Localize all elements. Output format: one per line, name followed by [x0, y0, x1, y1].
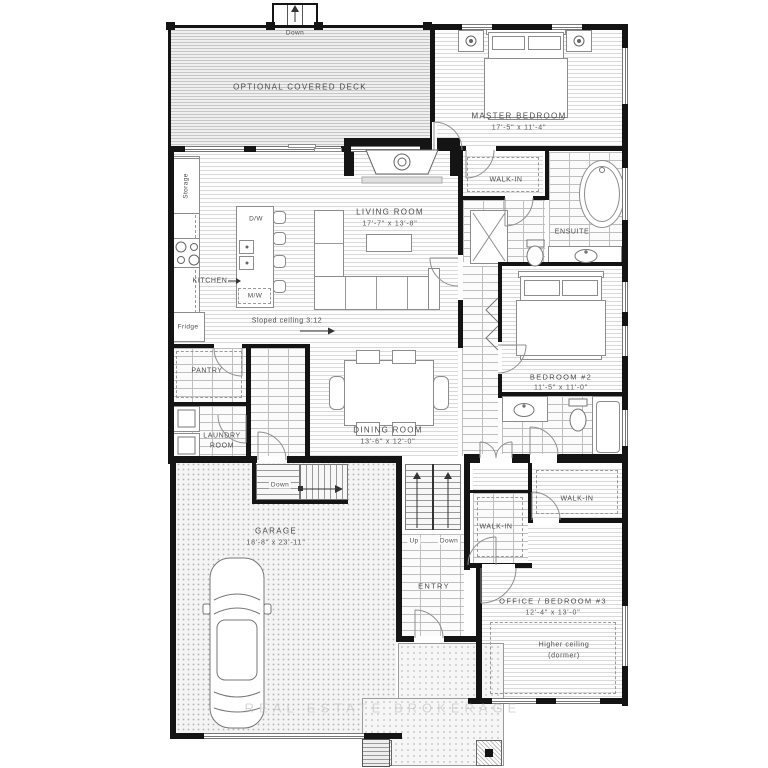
door-french-right	[496, 442, 512, 458]
pantry-label: PANTRY	[191, 368, 222, 375]
door-master	[434, 122, 462, 150]
office-bedroom3-label: OFFICE / BEDROOM #3	[499, 597, 607, 606]
toilet-bath-icon	[569, 399, 587, 431]
stairs-up-label: Up	[407, 538, 420, 545]
dormer-label: (dormer)	[548, 653, 580, 660]
fridge-label: Fridge	[178, 324, 199, 331]
living-room-dims: 17'-7" x 13'-8"	[362, 221, 417, 228]
fireplace-icon	[362, 150, 442, 183]
sloped-ceiling-label: Sloped ceiling 3:12	[252, 318, 323, 325]
dining-room-dims: 13'-6" x 12'-0"	[360, 439, 415, 446]
sink-drain	[246, 262, 249, 265]
dining-room-label: DINING ROOM	[353, 426, 422, 435]
laundry-label-1: LAUNDRY	[203, 433, 241, 440]
washer-dryer-icon	[178, 410, 195, 454]
walkin-office-label: WALK-IN	[560, 496, 593, 503]
tub-faucet	[600, 168, 605, 173]
toilet-ensuite-icon	[527, 240, 544, 266]
shower-x-icon	[473, 213, 505, 261]
living-room-label: LIVING ROOM	[356, 208, 424, 217]
walkin-master-label: WALK-IN	[489, 177, 522, 184]
door-walkin-entry	[468, 537, 496, 565]
sink-drain	[246, 246, 249, 249]
higher-ceiling-label: Higher ceiling	[539, 642, 590, 649]
sink-ensuite-icon	[575, 250, 597, 263]
bedroom2-dims: 11'-5" x 11'-0"	[534, 385, 588, 392]
door-walkin-office	[532, 492, 560, 520]
door-hall-living	[430, 258, 458, 286]
door-bath	[530, 427, 558, 455]
garage-label: GARAGE	[255, 527, 297, 536]
microwave-label: M/W	[248, 293, 263, 300]
door-bedroom2	[498, 345, 526, 373]
master-bedroom-dims: 17'-5" x 11'-4"	[492, 125, 547, 132]
sink-bath-icon	[514, 404, 534, 417]
door-french-left	[480, 442, 496, 458]
kitchen-label: KITCHEN	[193, 278, 228, 285]
lamp-icon	[466, 36, 584, 46]
deck-label: OPTIONAL COVERED DECK	[233, 83, 367, 92]
deck-steps-label: Down	[286, 30, 304, 37]
door-front	[415, 610, 443, 638]
office-bedroom3-dims: 12'-4" x 13'-0"	[525, 610, 580, 617]
dishwasher-label: D/W	[249, 216, 263, 223]
walkin-entry-label: WALK-IN	[479, 524, 512, 531]
garage-stairs-down-label: Down	[269, 482, 291, 489]
door-garage-mud	[258, 432, 286, 460]
door-walkin-master	[466, 150, 494, 178]
stairs-down-label: Down	[438, 538, 460, 545]
fixtures-overlay	[0, 0, 768, 768]
bifold-closet-bed2	[486, 298, 498, 350]
watermark: REAL ESTATE BROKERAGE	[245, 701, 522, 716]
door-ensuite	[505, 198, 533, 226]
storage-label: Storage	[183, 173, 190, 199]
bedroom2-label: BEDROOM #2	[530, 373, 592, 382]
master-bedroom-label: MASTER BEDROOM	[471, 112, 566, 121]
garage-dims: 18'-8" x 23'-11"	[246, 540, 305, 547]
entry-label: ENTRY	[418, 582, 450, 591]
laundry-label-2: ROOM	[210, 443, 234, 450]
stove-burners-icon	[176, 242, 199, 265]
floorplan-canvas: OPTIONAL COVERED DECK Down MASTER BEDROO…	[0, 0, 768, 768]
door-arcs	[214, 122, 560, 638]
ensuite-label: ENSUITE	[555, 229, 590, 236]
